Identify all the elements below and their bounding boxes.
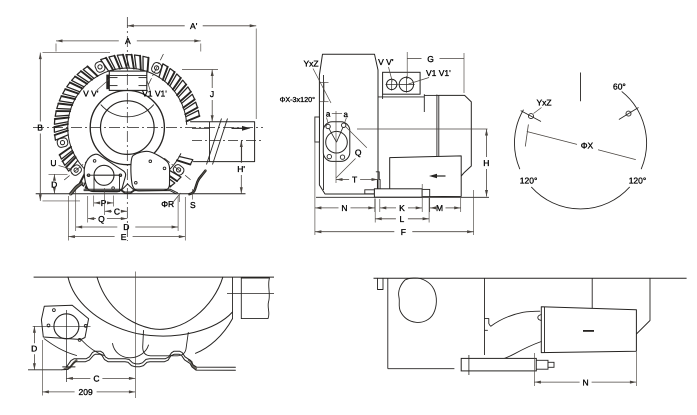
svg-text:N: N — [583, 377, 589, 387]
svg-text:120°: 120° — [629, 175, 647, 185]
svg-text:T: T — [352, 175, 357, 185]
svg-text:C: C — [93, 374, 99, 384]
svg-text:L: L — [400, 214, 405, 224]
svg-text:ΦX-3x120°: ΦX-3x120° — [280, 95, 316, 104]
svg-text:A: A — [125, 36, 131, 46]
svg-text:Q: Q — [98, 214, 105, 224]
svg-text:120°: 120° — [520, 175, 538, 185]
svg-text:P: P — [101, 198, 107, 208]
svg-text:D: D — [51, 180, 57, 190]
svg-text:J: J — [210, 89, 214, 99]
svg-text:a: a — [326, 109, 331, 118]
svg-text:V V': V V' — [378, 57, 394, 67]
svg-text:S: S — [190, 200, 196, 210]
svg-text:Q: Q — [355, 148, 362, 158]
svg-text:60°: 60° — [613, 81, 626, 91]
svg-text:M: M — [436, 203, 443, 213]
svg-text:H: H — [483, 158, 489, 168]
svg-text:A': A' — [190, 21, 198, 31]
svg-text:D: D — [31, 344, 37, 354]
svg-text:ΦR: ΦR — [161, 199, 174, 209]
svg-text:V1 V1': V1 V1' — [426, 68, 451, 78]
svg-text:U: U — [50, 158, 56, 168]
svg-text:B: B — [37, 123, 43, 133]
svg-text:V1 V1': V1 V1' — [142, 88, 167, 98]
svg-text:YxZ: YxZ — [303, 59, 318, 69]
svg-text:ΦX: ΦX — [581, 141, 594, 151]
svg-text:G: G — [427, 54, 434, 64]
svg-text:a: a — [343, 110, 348, 119]
svg-text:H': H' — [237, 164, 245, 174]
svg-text:F: F — [401, 227, 406, 237]
svg-text:K: K — [399, 203, 405, 213]
svg-text:N: N — [341, 203, 347, 213]
svg-text:YxZ: YxZ — [536, 98, 551, 108]
svg-text:C: C — [114, 207, 120, 217]
svg-text:E: E — [121, 232, 127, 242]
svg-text:209: 209 — [79, 387, 93, 397]
svg-text:V V': V V' — [83, 88, 99, 98]
svg-text:D: D — [123, 222, 129, 232]
